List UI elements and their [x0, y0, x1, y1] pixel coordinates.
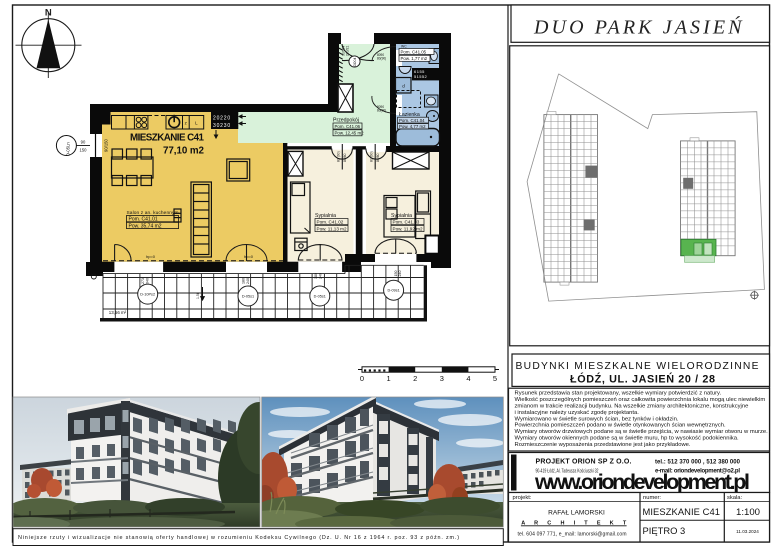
svg-text:80 (90): 80 (90)	[337, 151, 341, 162]
svg-text:0: 0	[360, 374, 364, 383]
svg-text:WC: WC	[401, 45, 407, 49]
svg-text:Niniejsze rzuty i wizualizacje: Niniejsze rzuty i wizualizacje nie stano…	[18, 535, 459, 541]
svg-text:Wymiarowano w świetle surowych: Wymiarowano w świetle surowych ścian, be…	[515, 416, 679, 422]
svg-text:D-05s1: D-05s1	[242, 294, 254, 298]
svg-text:180: 180	[314, 273, 318, 279]
svg-text:Sypialnia: Sypialnia	[391, 213, 412, 219]
svg-text:77,10 m2: 77,10 m2	[163, 146, 205, 157]
svg-text:Pow. 1,77 m2: Pow. 1,77 m2	[401, 56, 428, 61]
svg-text:i instalacyjne należy uzyskać: i instalacyjne należy uzyskać zgodę proj…	[515, 410, 640, 416]
svg-text:D-10Ps2: D-10Ps2	[140, 293, 155, 297]
svg-text:hp=0: hp=0	[146, 254, 156, 259]
svg-text:11.03.2024: 11.03.2024	[736, 529, 759, 534]
svg-text:90: 90	[81, 140, 86, 145]
svg-text:273: 273	[141, 278, 145, 284]
svg-text:Pow. 12,45 m2: Pow. 12,45 m2	[335, 131, 365, 136]
svg-text:Pom. C41.04: Pom. C41.04	[399, 118, 425, 123]
svg-text:51552: 51552	[414, 74, 427, 79]
svg-text:1: 1	[387, 374, 391, 383]
svg-text:Przedpokój: Przedpokój	[333, 118, 359, 124]
svg-text:tel. 604 097 771, e_mail: tel. 604 097 771, e_mail: lamorski@gmail…	[518, 532, 627, 538]
svg-text:240: 240	[319, 273, 323, 279]
svg-text:20220: 20220	[213, 115, 231, 121]
svg-text:80/80: 80/80	[343, 153, 347, 162]
svg-text:13,56 m²: 13,56 m²	[109, 310, 127, 315]
svg-text:150: 150	[80, 148, 88, 153]
svg-text:Rozmieszczenie wyposażenia prz: Rozmieszczenie wyposażenia przedstawione…	[515, 442, 691, 448]
svg-text:BUDYNKI MIESZKALNE WIELORODZIN: BUDYNKI MIESZKALNE WIELORODZINNE	[516, 361, 759, 372]
svg-text:4: 4	[466, 374, 470, 383]
svg-text:skala:: skala:	[727, 495, 743, 501]
svg-text:Pom. C41.02: Pom. C41.02	[317, 220, 344, 225]
svg-text:240: 240	[246, 278, 250, 284]
svg-text:30230: 30230	[213, 123, 231, 129]
svg-text:80(90): 80(90)	[377, 109, 386, 113]
svg-text:MIESZKANIE C41: MIESZKANIE C41	[130, 133, 205, 144]
svg-text:Pom. C41.01: Pom. C41.01	[129, 217, 158, 223]
svg-text:numer:: numer:	[643, 495, 661, 501]
svg-text:D-05s1: D-05s1	[314, 294, 326, 298]
svg-text:DO04: DO04	[353, 58, 357, 67]
svg-text:PIĘTRO 3: PIĘTRO 3	[643, 525, 686, 536]
svg-text:80/80: 80/80	[376, 153, 380, 162]
svg-text:2: 2	[413, 374, 417, 383]
svg-text:www.oriondevelopment.pl: www.oriondevelopment.pl	[534, 470, 750, 494]
svg-text:90/150: 90/150	[104, 139, 109, 152]
svg-text:ŁÓDŹ, UL. JASIEŃ 20 / 28: ŁÓDŹ, UL. JASIEŃ 20 / 28	[570, 373, 715, 386]
svg-text:040: 040	[146, 278, 150, 284]
svg-text:Pow. 11,92 m2: Pow. 11,92 m2	[393, 226, 423, 231]
svg-text:D-05Ln: D-05Ln	[66, 142, 71, 156]
svg-text:Pow. 35,74 m2: Pow. 35,74 m2	[129, 223, 162, 229]
svg-text:Wielkość poszczególnych pomies: Wielkość poszczególnych pomieszczeń oraz…	[515, 397, 766, 403]
svg-text:240: 240	[398, 271, 402, 277]
svg-text:3: 3	[440, 374, 444, 383]
svg-text:DUO PARK JASIEŃ: DUO PARK JASIEŃ	[533, 16, 745, 39]
svg-text:1:100: 1:100	[736, 507, 760, 518]
svg-text:Sypialnia: Sypialnia	[315, 213, 336, 219]
svg-text:Rysunek przedstawia stan proje: Rysunek przedstawia stan projektowany, w…	[515, 391, 722, 397]
svg-text:N: N	[45, 8, 52, 19]
svg-text:Wymiary otworów drzwiowych pod: Wymiary otworów drzwiowych podane są w ś…	[515, 429, 769, 435]
svg-text:Powierzchnia pomieszczeń podan: Powierzchnia pomieszczeń podano w świetl…	[515, 423, 727, 429]
svg-text:5: 5	[493, 374, 497, 383]
svg-text:hp=0: hp=0	[244, 254, 254, 259]
svg-text:200/21: 200/21	[346, 46, 350, 56]
svg-text:80(90): 80(90)	[377, 57, 386, 61]
svg-text:1.5k: 1.5k	[196, 292, 200, 299]
svg-text:Wymiary otworów okiennych poda: Wymiary otworów okiennych podane są w św…	[515, 436, 739, 442]
svg-text:tel.: 512 370 000 , 512 380 00: tel.: 512 370 000 , 512 380 000	[655, 460, 741, 466]
svg-text:PROJEKT ORION SP Z O.O.: PROJEKT ORION SP Z O.O.	[536, 459, 632, 466]
svg-text:180: 180	[242, 278, 246, 284]
svg-text:Pow. 4,77 m2: Pow. 4,77 m2	[399, 124, 426, 129]
svg-text:Pom. C41.06: Pom. C41.06	[335, 124, 361, 129]
svg-text:80 (90): 80 (90)	[370, 151, 374, 162]
svg-text:Pow. 11,13 m2: Pow. 11,13 m2	[317, 226, 347, 231]
svg-text:Pom. C41.03: Pom. C41.03	[393, 220, 420, 225]
svg-text:projekt:: projekt:	[513, 495, 532, 501]
svg-text:D-09s1: D-09s1	[387, 289, 399, 293]
svg-text:RAFAŁ LAMORSKI: RAFAŁ LAMORSKI	[548, 509, 605, 516]
svg-text:zmianom w trakcie realizacji b: zmianom w trakcie realizacji budynku. Na…	[515, 403, 749, 409]
svg-text:MIESZKANIE C41: MIESZKANIE C41	[643, 506, 721, 517]
svg-text:Pom. C41.05: Pom. C41.05	[401, 49, 427, 54]
